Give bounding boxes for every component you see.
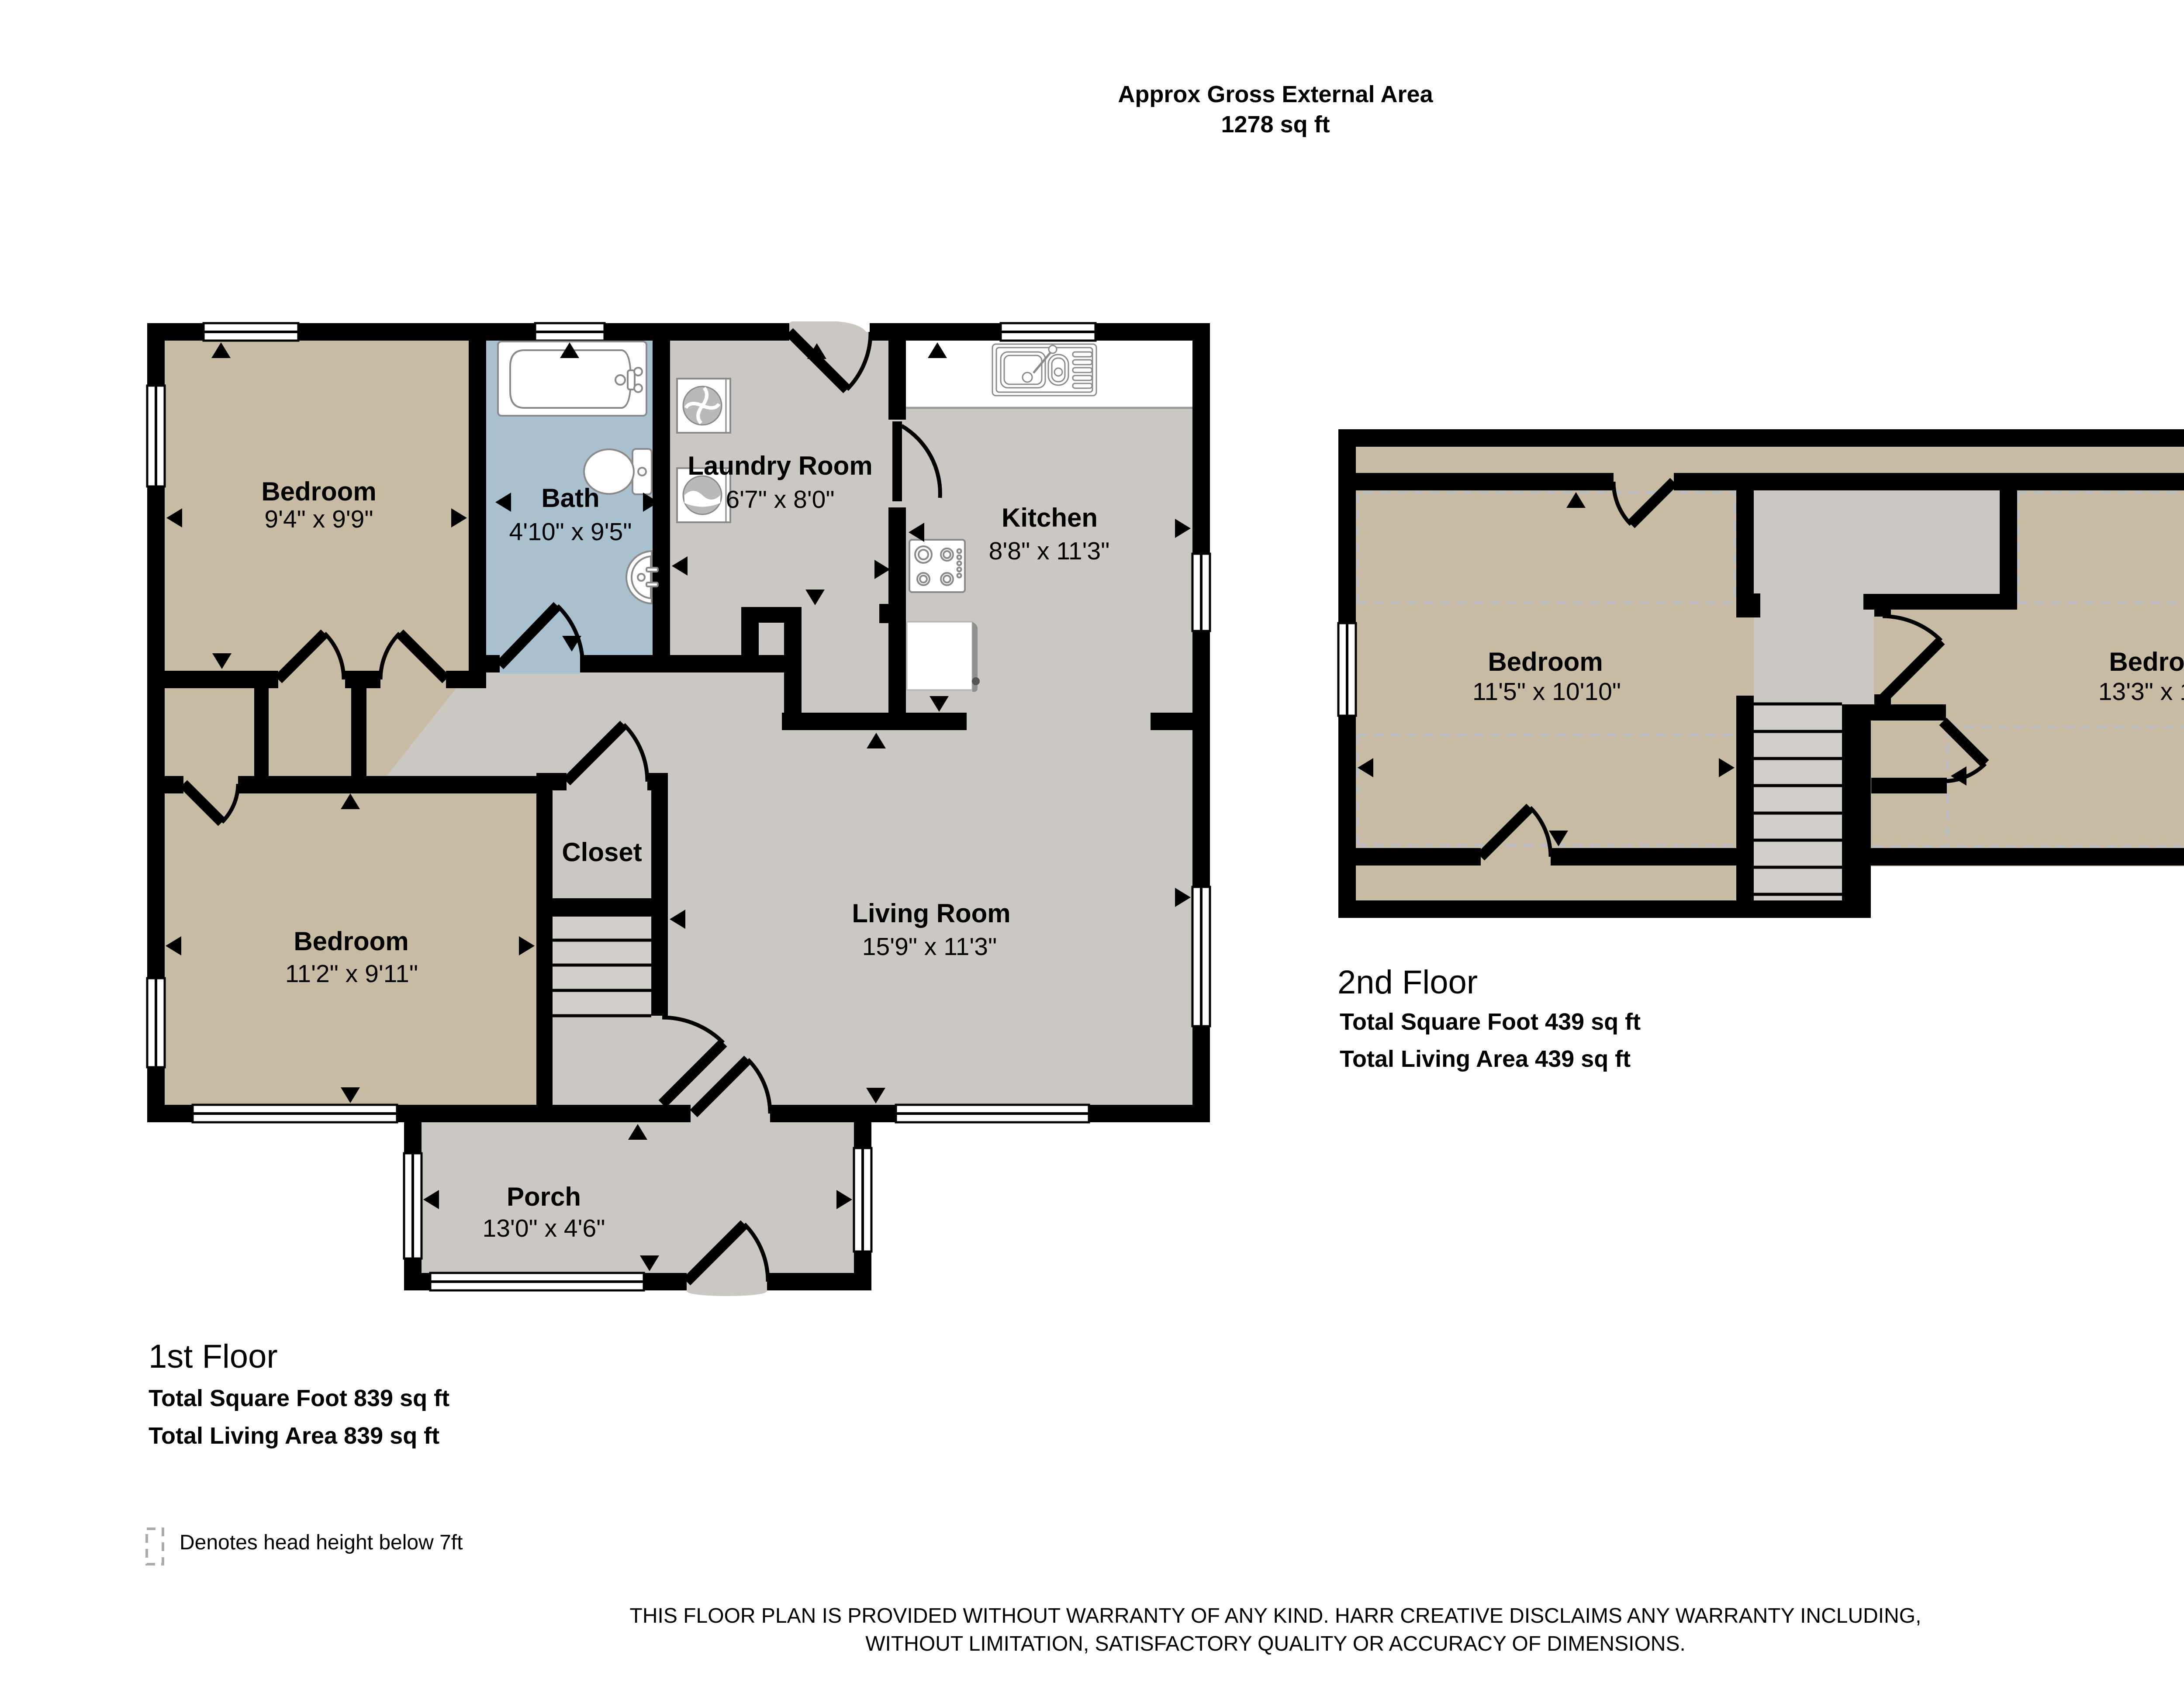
svg-text:Living Room: Living Room [852, 899, 1010, 928]
svg-text:THIS FLOOR PLAN IS PROVIDED WI: THIS FLOOR PLAN IS PROVIDED WITHOUT WARR… [630, 1604, 1921, 1628]
svg-text:Bedroom: Bedroom [294, 927, 408, 956]
svg-text:Bedroom: Bedroom [2109, 647, 2184, 676]
svg-text:11'2" x 9'11": 11'2" x 9'11" [285, 960, 418, 988]
svg-text:13'3" x 10'8": 13'3" x 10'8" [2098, 678, 2184, 706]
svg-text:Kitchen: Kitchen [1002, 503, 1098, 532]
svg-text:6'7" x 8'0": 6'7" x 8'0" [726, 486, 834, 514]
svg-text:13'0" x 4'6": 13'0" x 4'6" [483, 1214, 605, 1242]
svg-text:Denotes head height below 7ft: Denotes head height below 7ft [180, 1531, 463, 1554]
svg-text:WITHOUT LIMITATION, SATISFACTO: WITHOUT LIMITATION, SATISFACTORY QUALITY… [865, 1632, 1686, 1655]
svg-text:Bath: Bath [541, 483, 599, 513]
svg-text:Total Square Foot 439 sq ft: Total Square Foot 439 sq ft [1340, 1009, 1641, 1035]
svg-text:4'10" x 9'5": 4'10" x 9'5" [509, 518, 632, 546]
svg-text:Total Square Foot 839 sq ft: Total Square Foot 839 sq ft [149, 1385, 449, 1411]
svg-text:11'5" x 10'10": 11'5" x 10'10" [1472, 678, 1621, 706]
svg-text:Laundry Room: Laundry Room [688, 451, 872, 480]
svg-text:Porch: Porch [507, 1182, 581, 1211]
svg-text:Bedroom: Bedroom [1488, 647, 1603, 676]
svg-text:8'8" x 11'3": 8'8" x 11'3" [989, 537, 1110, 565]
svg-text:Bedroom: Bedroom [261, 477, 376, 506]
svg-text:Approx Gross External Area: Approx Gross External Area [1118, 81, 1433, 107]
svg-text:1st Floor: 1st Floor [149, 1338, 278, 1375]
svg-text:2nd Floor: 2nd Floor [1337, 964, 1478, 1001]
svg-text:Total Living Area 839 sq ft: Total Living Area 839 sq ft [149, 1423, 439, 1449]
svg-text:15'9" x 11'3": 15'9" x 11'3" [862, 933, 997, 961]
svg-text:9'4" x 9'9": 9'4" x 9'9" [264, 505, 373, 533]
svg-text:1278 sq ft: 1278 sq ft [1221, 111, 1330, 138]
svg-text:Closet: Closet [562, 838, 642, 867]
svg-text:Total Living Area 439 sq ft: Total Living Area 439 sq ft [1340, 1046, 1631, 1072]
